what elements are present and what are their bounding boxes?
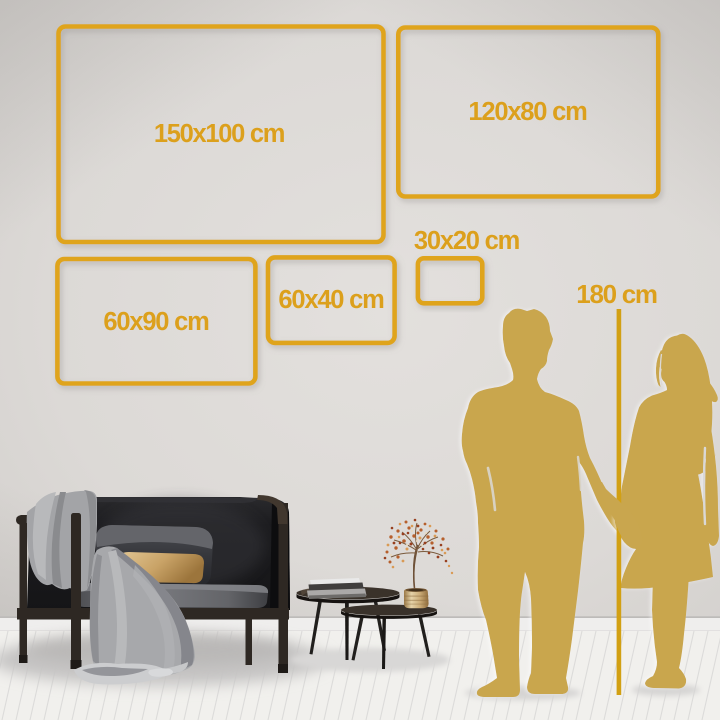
svg-text:30x20 cm: 30x20 cm bbox=[414, 227, 520, 255]
svg-text:60x90 cm: 60x90 cm bbox=[103, 308, 209, 336]
svg-text:180 cm: 180 cm bbox=[576, 279, 657, 309]
svg-text:150x100 cm: 150x100 cm bbox=[154, 120, 285, 148]
svg-text:120x80 cm: 120x80 cm bbox=[468, 98, 587, 126]
svg-text:60x40 cm: 60x40 cm bbox=[278, 286, 384, 314]
